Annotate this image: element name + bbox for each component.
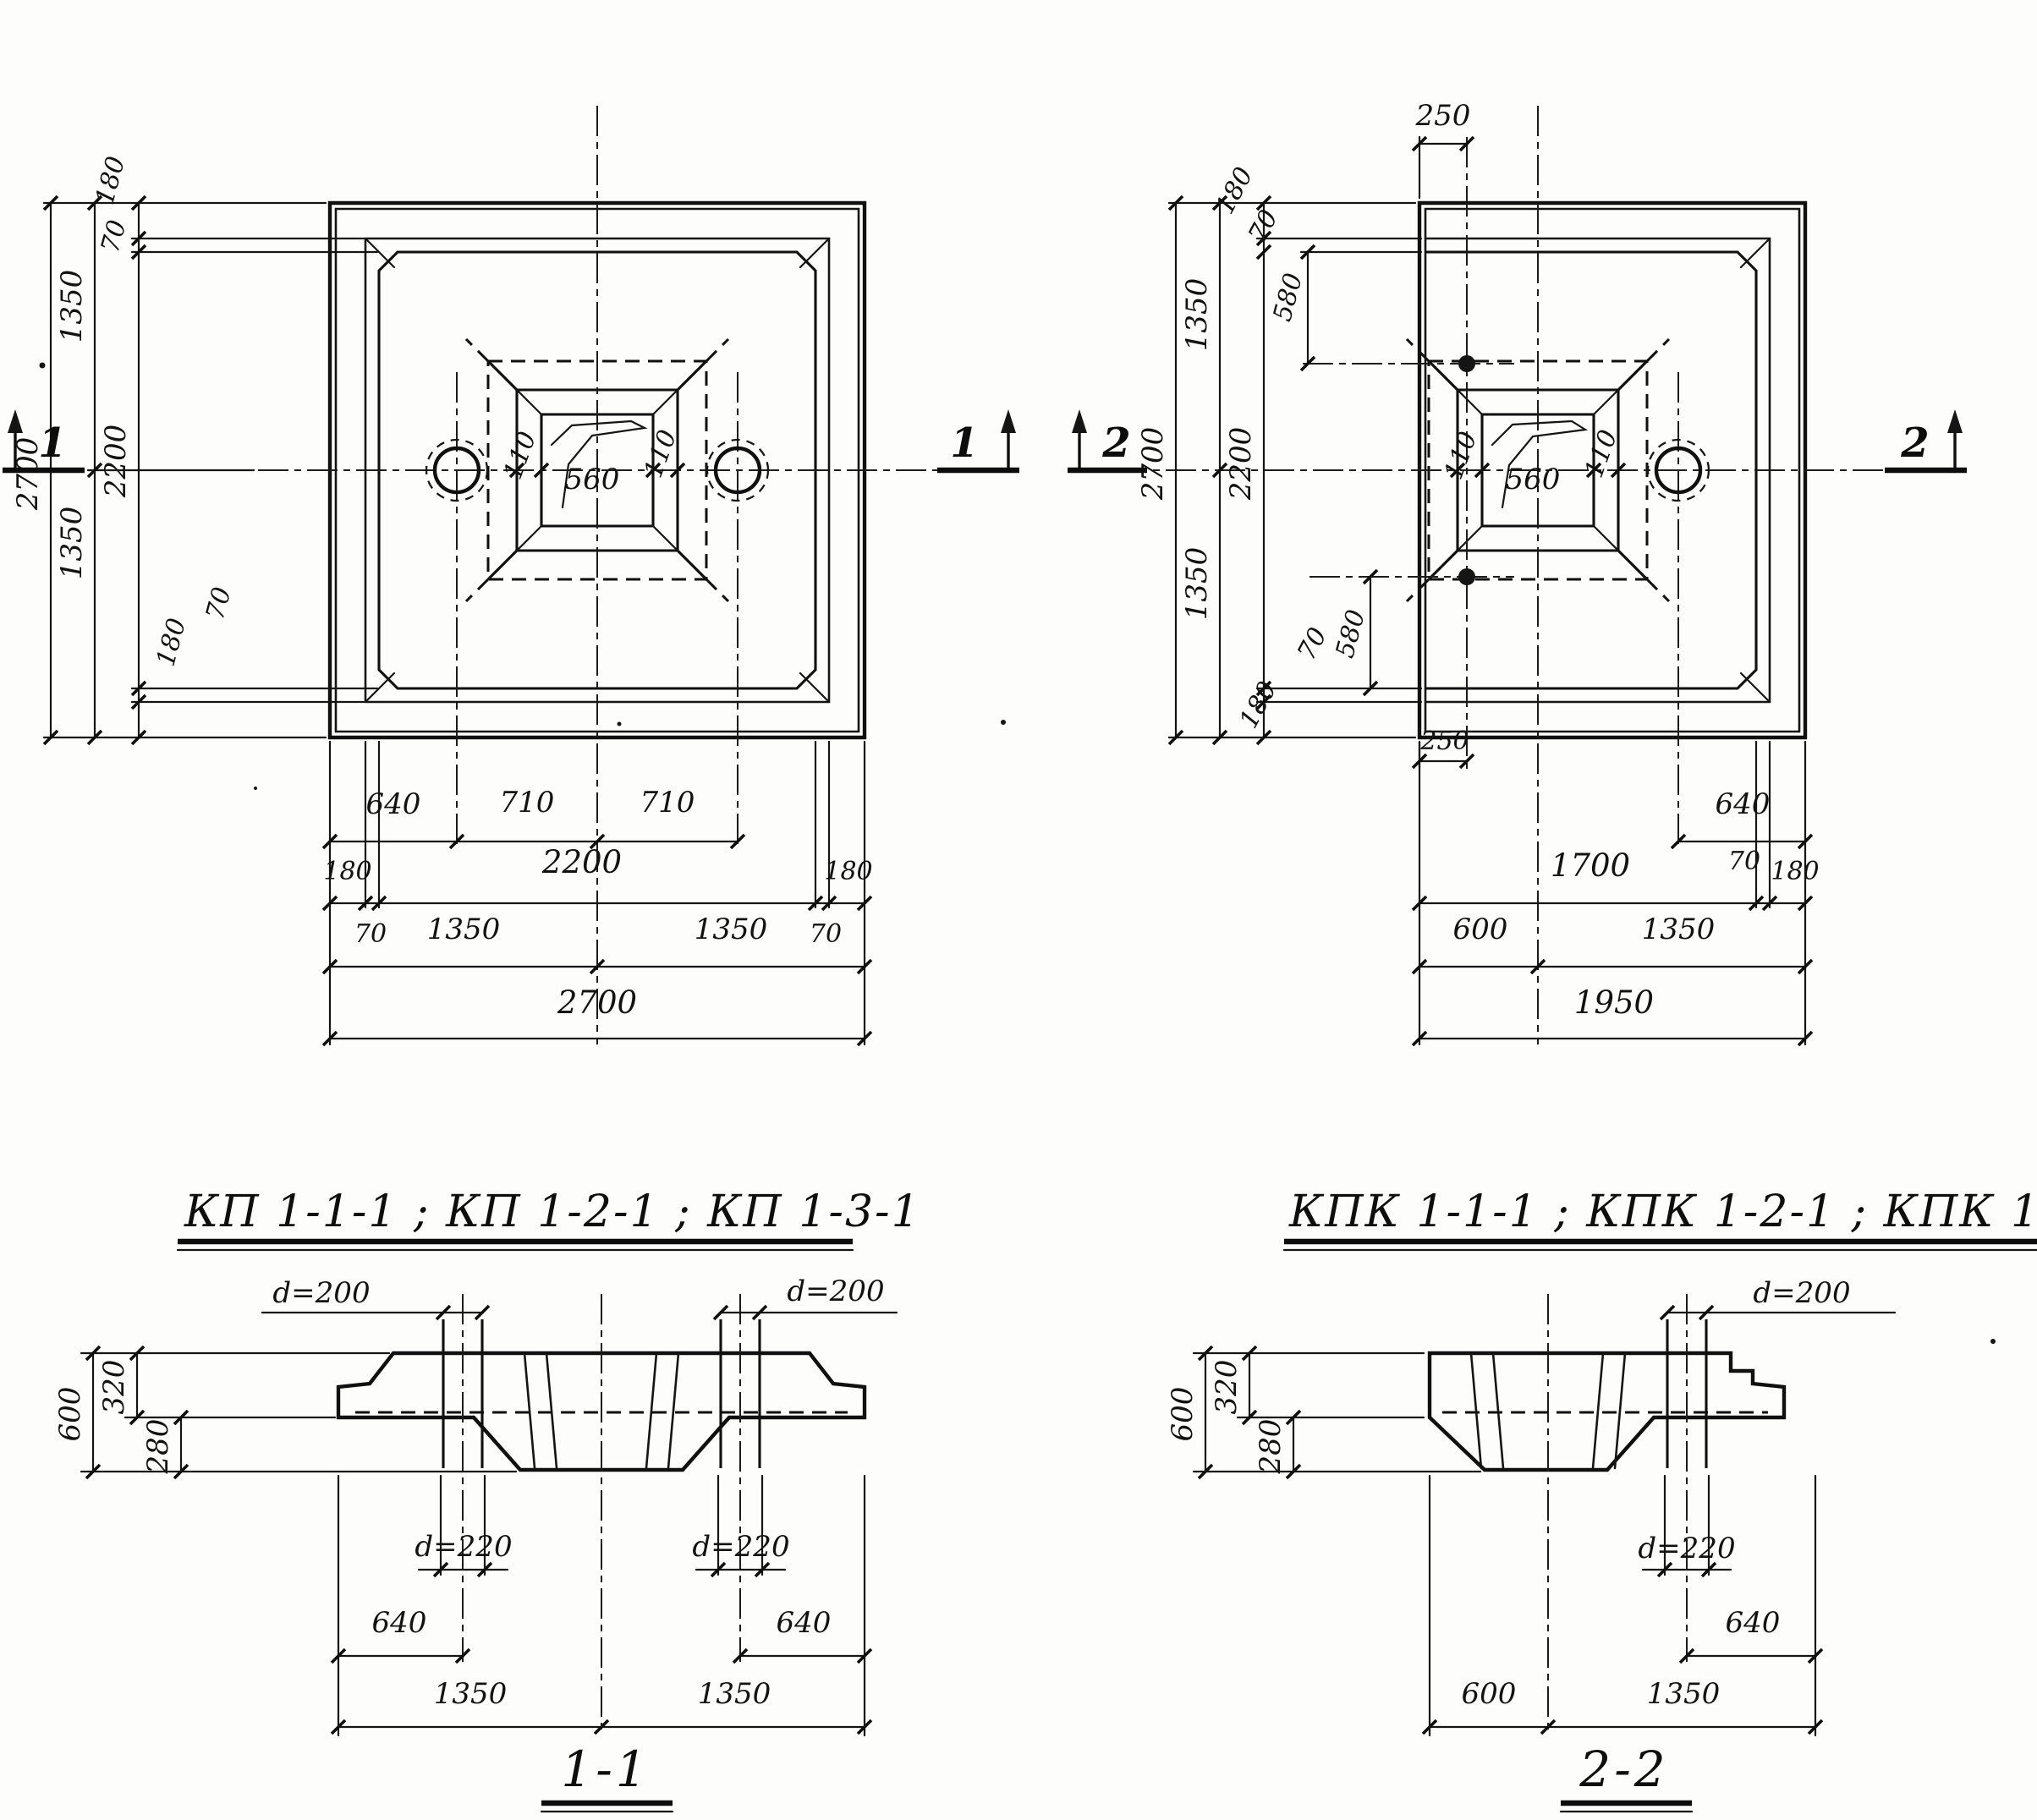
section-title: 1-1 <box>561 1741 650 1798</box>
dim-label: 580 <box>1331 606 1372 661</box>
section-number: 2 <box>1101 419 1130 467</box>
dim-label: 180 <box>1771 857 1819 886</box>
dim-label: 1350 <box>1642 913 1716 946</box>
section-title: 2-2 <box>1579 1741 1668 1798</box>
dim-label: 70 <box>1292 622 1333 665</box>
dim-label: 640 <box>372 1606 427 1640</box>
dim-label: 70 <box>1243 205 1284 247</box>
dim-label: d=200 <box>787 1275 884 1308</box>
dim-label: d=200 <box>272 1276 370 1310</box>
plan-titles: КП 1-1-1 ; КП 1-2-1 ; КП 1-3-1 КПК 1-1-1… <box>178 1187 2037 1250</box>
plan-kpk-title: КПК 1-1-1 ; КПК 1-2-1 ; КПК 1-3-1 <box>1288 1187 2037 1237</box>
dim-label: 70 <box>810 919 842 949</box>
drawing-canvas: 2700 1350 1350 2200 180 70 70 180 640 71… <box>0 0 2037 1820</box>
section-2-2-title: 2-2 <box>1561 1741 1692 1812</box>
dim-label: 600 <box>53 1387 87 1442</box>
plan-kp-labels: 2700 1350 1350 2200 180 70 70 180 640 71… <box>11 153 873 1021</box>
section-1-1-dimensions <box>81 1306 897 1735</box>
dim-label: 1350 <box>1180 278 1214 352</box>
dim-label: 600 <box>1462 1677 1517 1711</box>
dim-label: 180 <box>323 857 371 886</box>
dim-label: 640 <box>1716 787 1771 821</box>
dim-label: 1350 <box>1647 1677 1721 1711</box>
section-2-2: d=200 d=220 600 320 280 640 600 1350 2-2 <box>1166 1276 1895 1812</box>
dim-label: 1350 <box>698 1677 771 1711</box>
section-cut-marker-2-right: 2 <box>1885 409 1967 470</box>
dim-label: 1350 <box>55 507 89 580</box>
section-1-1-title: 1-1 <box>541 1741 673 1812</box>
dim-label: 640 <box>366 787 421 821</box>
section-cut-marker-2-left: 2 <box>1068 409 1147 470</box>
dim-label: 180 <box>151 615 193 669</box>
dim-label: 280 <box>1254 1419 1288 1475</box>
plan-kpk: 250 2700 1350 1350 2200 180 70 580 580 7… <box>1068 99 1967 1045</box>
dim-label: 180 <box>824 857 872 886</box>
dim-label: 180 <box>1234 677 1283 733</box>
dim-label: 70 <box>354 919 387 949</box>
dim-label: 2200 <box>99 425 133 499</box>
plan-kpk-labels: 250 2700 1350 1350 2200 180 70 580 580 7… <box>1136 99 1820 1021</box>
dim-label: 70 <box>1728 847 1760 876</box>
dim-label: 600 <box>1166 1387 1200 1442</box>
dim-label: 580 <box>1268 270 1309 324</box>
dim-label: 1350 <box>427 913 501 946</box>
dim-label: 710 <box>640 786 695 820</box>
dim-label: 70 <box>96 217 133 256</box>
dim-label: 1700 <box>1551 847 1630 884</box>
dim-label: 2200 <box>541 844 622 880</box>
section-2-2-outline <box>1430 1319 1784 1470</box>
dim-label: 1350 <box>695 913 768 946</box>
dim-label: d=200 <box>1753 1276 1850 1310</box>
section-2-2-dimensions <box>1194 1306 1895 1735</box>
dim-label: 600 <box>1453 913 1508 946</box>
dim-label: d=220 <box>1638 1532 1735 1565</box>
section-1-1: d=200 d=200 d=220 d=220 600 320 280 640 … <box>53 1275 897 1812</box>
section-2-2-centerlines <box>1548 1294 1687 1734</box>
dim-label: 250 <box>1419 726 1469 756</box>
grout-hole-dot <box>1458 355 1475 372</box>
dim-label: d=220 <box>692 1530 789 1564</box>
dim-label: 640 <box>1726 1606 1781 1640</box>
dim-label: 1350 <box>434 1677 508 1711</box>
dim-label: 180 <box>91 153 132 207</box>
dim-label: 180 <box>1211 162 1260 219</box>
dim-label: 2200 <box>1224 427 1258 502</box>
plan-kp: 2700 1350 1350 2200 180 70 70 180 640 71… <box>3 106 1019 1045</box>
section-number: 2 <box>1900 419 1929 467</box>
dim-label: 1950 <box>1574 984 1654 1021</box>
section-cut-marker-1-left: 1 <box>3 409 85 470</box>
section-1-1-centerlines <box>463 1294 740 1734</box>
dim-label: 560 <box>1506 463 1561 496</box>
dim-label: 1350 <box>55 270 89 343</box>
plan-kpk-dimensions <box>1169 137 1812 1045</box>
dim-label: 320 <box>97 1360 131 1415</box>
dim-label: 1350 <box>1180 547 1214 621</box>
section-2-2-labels: d=200 d=220 600 320 280 640 600 1350 <box>1166 1276 1851 1711</box>
dim-label: 710 <box>500 786 555 820</box>
dim-label: d=220 <box>415 1530 512 1564</box>
section-cut-marker-1-right: 1 <box>937 409 1019 470</box>
dim-label: 280 <box>141 1419 175 1475</box>
dim-label: 2700 <box>557 984 637 1021</box>
dim-label: 640 <box>777 1606 832 1640</box>
section-number: 1 <box>950 419 978 467</box>
drawing-sheet: 2700 1350 1350 2200 180 70 70 180 640 71… <box>0 0 2037 1820</box>
dim-label: 560 <box>565 463 620 496</box>
grout-hole-dot <box>1458 568 1475 585</box>
dim-label: 250 <box>1415 99 1471 133</box>
plan-kp-title: КП 1-1-1 ; КП 1-2-1 ; КП 1-3-1 <box>184 1187 921 1237</box>
dim-label: 320 <box>1210 1360 1244 1415</box>
section-number: 1 <box>38 419 66 467</box>
dim-label: 2700 <box>1136 427 1170 502</box>
dim-label: 70 <box>200 584 238 623</box>
